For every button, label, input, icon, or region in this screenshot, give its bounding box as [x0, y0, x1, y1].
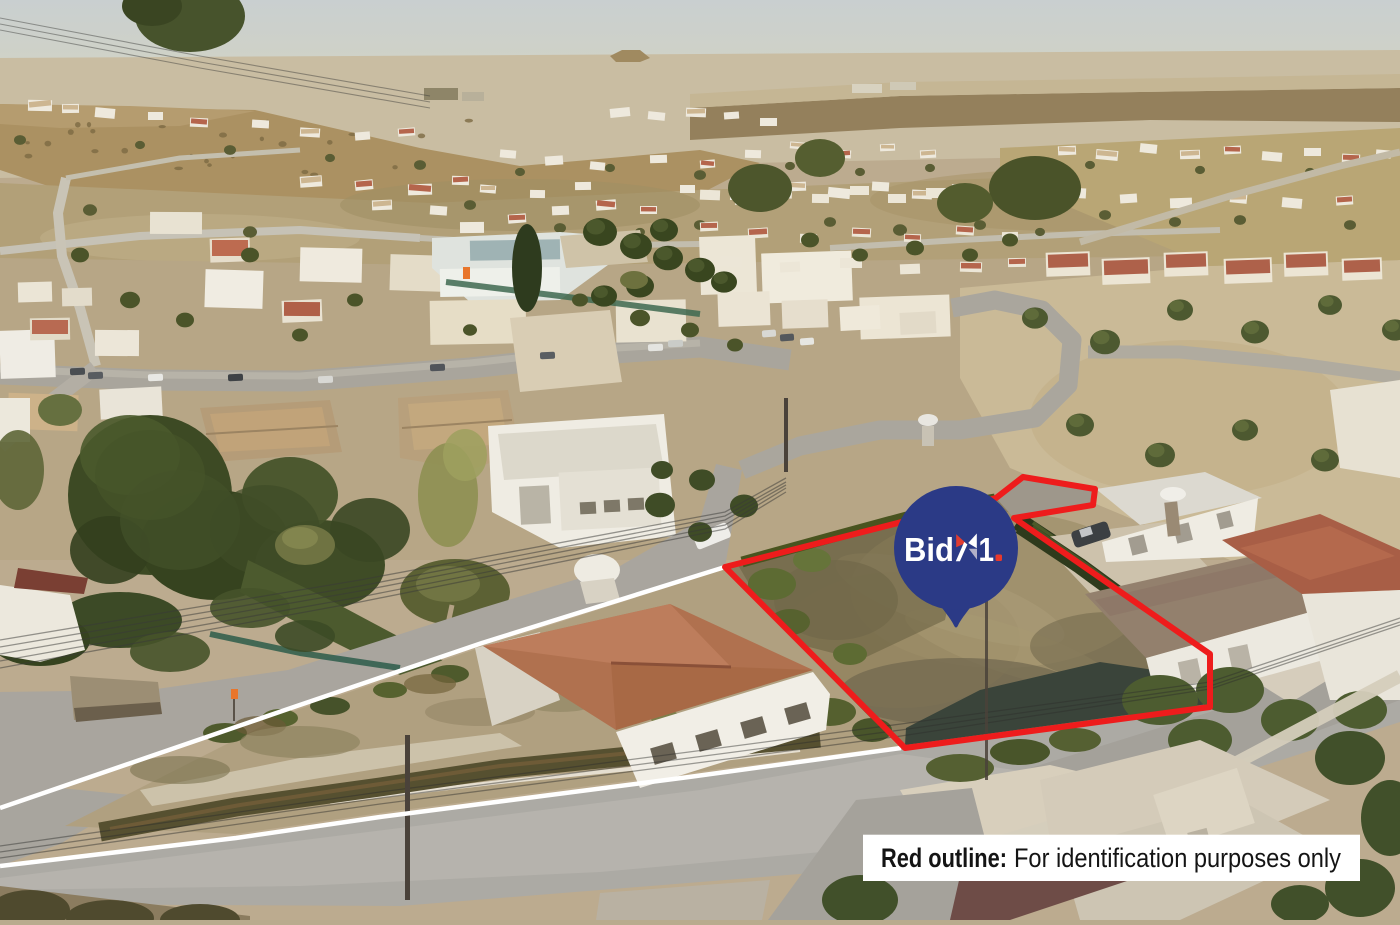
svg-text:Bid: Bid: [904, 531, 954, 568]
svg-text:Red outline:: Red outline:: [881, 843, 1007, 873]
svg-text:For identification purposes on: For identification purposes only: [1014, 843, 1342, 873]
svg-text:1: 1: [979, 531, 995, 568]
